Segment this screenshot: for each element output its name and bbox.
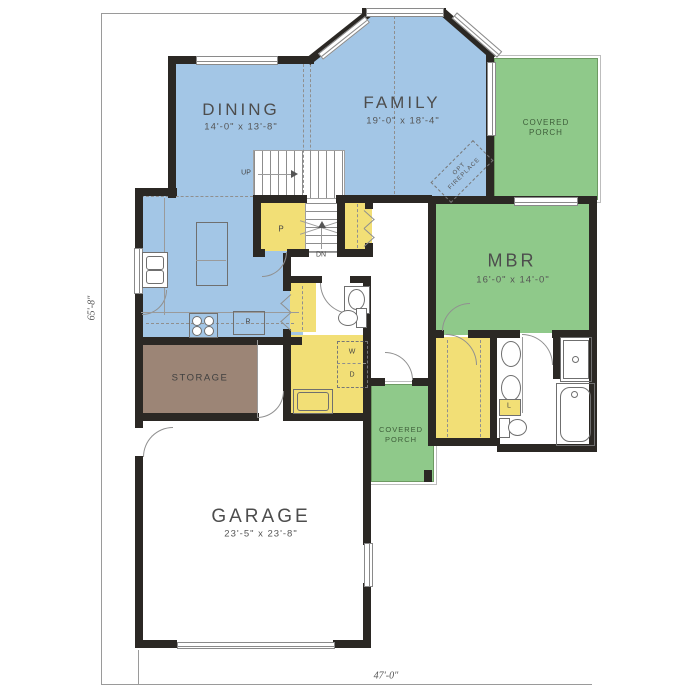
closet-rod-line [357,204,358,248]
washer-label: W [349,349,356,356]
bath-sink [501,375,521,401]
range-burner [204,326,214,336]
wall-segment [135,337,302,345]
wall-segment [290,276,322,283]
rear-porch-label-line1: COVERED [523,118,570,128]
range-burner [204,316,214,326]
wall-segment [253,195,261,257]
wall-segment [135,413,259,421]
kitchen-sink-basin [146,270,164,284]
washer-dryer-divider [337,363,366,364]
dining-family-break-line [310,64,311,198]
kitchen-dining-break-line [141,196,253,197]
down-arrow-line [321,227,322,249]
tub-drain [571,391,578,398]
rear-porch-label-line2: PORCH [523,128,570,138]
wall-segment [363,413,371,545]
bath-sink [501,341,521,367]
wall-segment [428,330,444,338]
utility-sink-basin [297,392,329,411]
garage-label: GARAGE [211,506,310,528]
wall-segment [428,196,436,446]
front-porch-label-line1: COVERED [379,425,423,435]
rear-porch-label: COVERED PORCH [523,118,570,138]
pantry-label: P [278,225,283,234]
mbr-dims: 16'-0" x 14'-0" [476,275,549,286]
wall-segment [337,195,345,257]
wall-segment [135,640,177,648]
front-porch-label: COVERED PORCH [379,425,423,445]
up-arrow-line [258,174,292,175]
family-dims: 19'-0" x 18'-4" [366,116,439,127]
floor-plan-canvas: 65'-8" 47'-0" [0,0,700,700]
powder-toilet-bowl [338,310,358,326]
door-arc-garage-hall [257,391,284,418]
dining-label: DINING [202,100,280,120]
down-label: DN [316,252,326,259]
dimension-line-bottom [101,684,592,685]
powder-sink [348,289,365,310]
kitchen-island [196,222,228,286]
garage-dims: 23'-5" x 23'-8" [224,529,297,540]
up-arrow-head [291,170,298,178]
range-burner [192,326,202,336]
dimension-extension-bottom-left [138,650,139,684]
window-garage [364,543,373,587]
up-label: UP [241,170,251,177]
wall-segment [253,195,307,203]
wall-segment [135,188,177,196]
bath-toilet-bowl [508,419,527,436]
shower-drain [572,356,579,363]
garage-door-panel [177,642,335,649]
counter-edge-line [141,312,299,313]
wall-segment-shower [553,337,560,379]
mbr-label: MBR [488,251,537,272]
wall-segment [371,378,385,386]
kitchen-island-divider [196,260,226,261]
wall-segment [365,195,373,209]
wall-segment [135,456,143,648]
wall-segment [363,583,371,648]
window-mbr [514,197,578,206]
closet-rod-line [302,286,303,330]
dining-family-break-line [303,64,304,198]
counter-dashed-line [146,323,294,324]
refrigerator-label: R [245,319,250,326]
dryer-label: D [349,372,354,379]
front-porch-label-line2: PORCH [379,435,423,445]
door-arc-porch-entry [385,352,413,380]
vanity-edge-line [522,337,523,413]
wall-segment [336,195,432,203]
wall-segment [412,378,428,386]
window-dining [196,56,278,65]
down-arrow-head [318,221,326,228]
dimension-line-left [101,13,102,685]
range-burner [192,316,202,326]
window-family-right [487,62,496,136]
kitchen-sink-basin [146,256,164,270]
wall-segment [287,249,309,257]
overall-height-dimension: 65'-8" [87,296,98,321]
family-label: FAMILY [363,93,440,113]
dimension-extension-top [101,13,365,14]
overall-width-dimension: 47'-0" [374,671,399,682]
door-arc-garage-entry [143,427,173,457]
storage-label: STORAGE [172,373,229,384]
wall-segment [490,330,497,446]
linen-label: L [507,403,511,410]
wall-segment [168,56,176,198]
wall-segment-porch-stub [424,470,432,482]
window-bay-top [366,8,444,17]
closet-rod-line [480,340,481,437]
hall-floor [291,255,367,277]
wall-segment [283,413,371,421]
dining-dims: 14'-0" x 13'-8" [204,122,277,133]
powder-closet-floor [290,283,316,332]
